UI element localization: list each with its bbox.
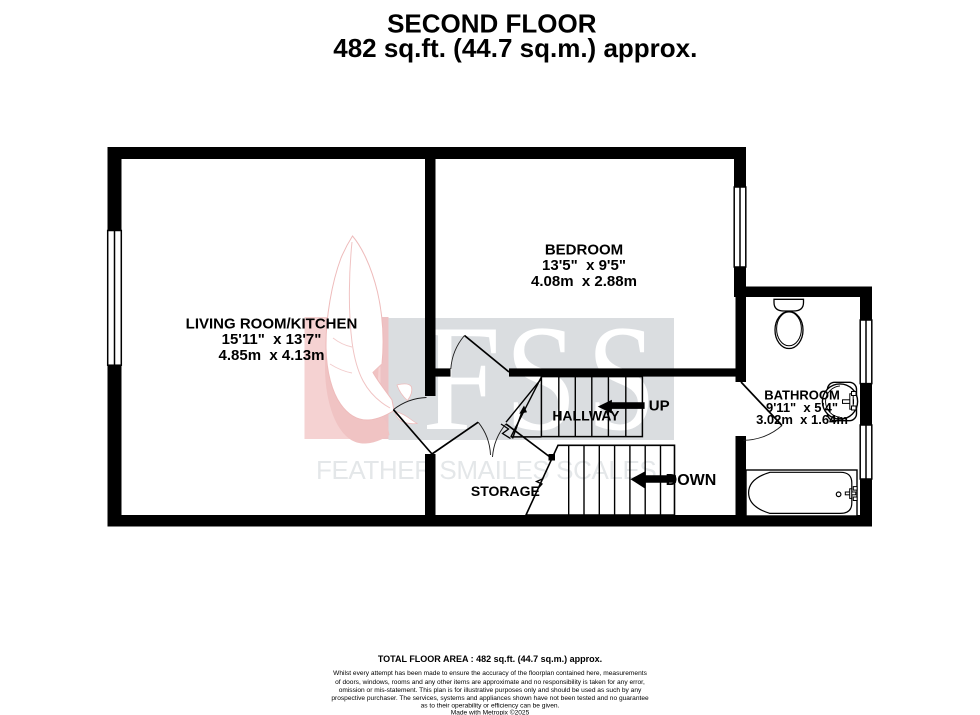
svg-text:3.02m x 1.64m: 3.02m x 1.64m — [756, 412, 848, 427]
svg-text:Made with Metropix ©2025: Made with Metropix ©2025 — [451, 708, 530, 715]
svg-text:UP: UP — [649, 398, 670, 415]
svg-text:15'11" x 13'7": 15'11" x 13'7" — [222, 331, 322, 348]
svg-text:STORAGE: STORAGE — [471, 483, 540, 499]
svg-text:13'5" x 9'5": 13'5" x 9'5" — [542, 257, 626, 274]
svg-text:of doors, windows, rooms and a: of doors, windows, rooms and any other i… — [335, 679, 645, 686]
svg-text:4.85m x 4.13m: 4.85m x 4.13m — [219, 347, 325, 364]
svg-text:omission or mis-statement. Thi: omission or mis-statement. This plan is … — [339, 687, 642, 694]
svg-text:4.08m x 2.88m: 4.08m x 2.88m — [531, 273, 637, 290]
svg-text:prospective purchaser. The ser: prospective purchaser. The services, sys… — [331, 695, 649, 702]
svg-text:LIVING ROOM/KITCHEN: LIVING ROOM/KITCHEN — [186, 315, 358, 332]
svg-text:TOTAL FLOOR AREA : 482 sq.ft.: TOTAL FLOOR AREA : 482 sq.ft. (44.7 sq.m… — [378, 654, 602, 664]
svg-text:HALLWAY: HALLWAY — [552, 408, 620, 424]
svg-text:FEATHER SMAILES SCALES: FEATHER SMAILES SCALES — [316, 455, 656, 485]
svg-text:Whilst every attempt has been: Whilst every attempt has been made to en… — [333, 670, 647, 677]
svg-text:BEDROOM: BEDROOM — [545, 241, 623, 258]
svg-text:482 sq.ft. (44.7 sq.m.) approx: 482 sq.ft. (44.7 sq.m.) approx. — [333, 33, 697, 63]
svg-text:DOWN: DOWN — [666, 472, 717, 489]
